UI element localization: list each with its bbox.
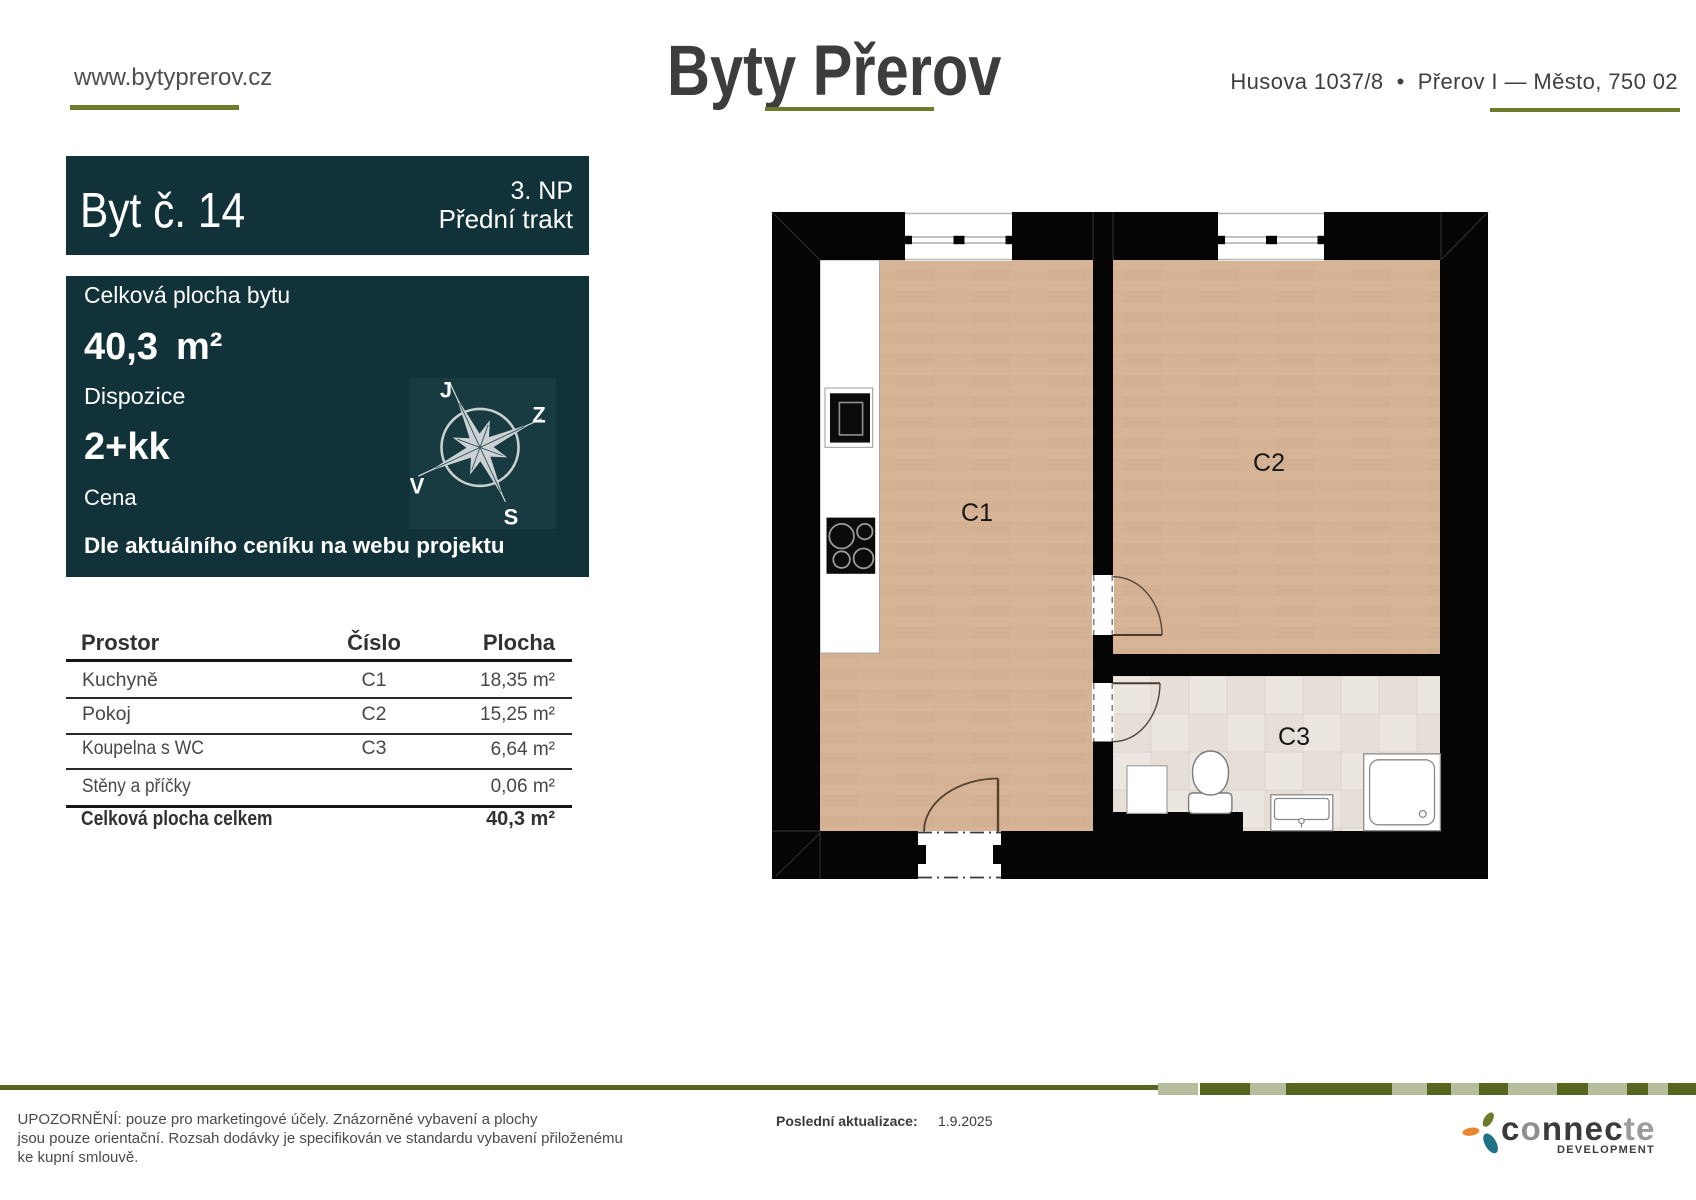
svg-text:S: S (504, 504, 519, 529)
svg-text:C1: C1 (961, 499, 993, 527)
svg-text:C2: C2 (1253, 449, 1285, 477)
svg-text:V: V (410, 473, 425, 498)
svg-text:Z: Z (532, 402, 545, 427)
svg-text:J: J (440, 378, 452, 402)
svg-text:C3: C3 (1278, 723, 1310, 751)
